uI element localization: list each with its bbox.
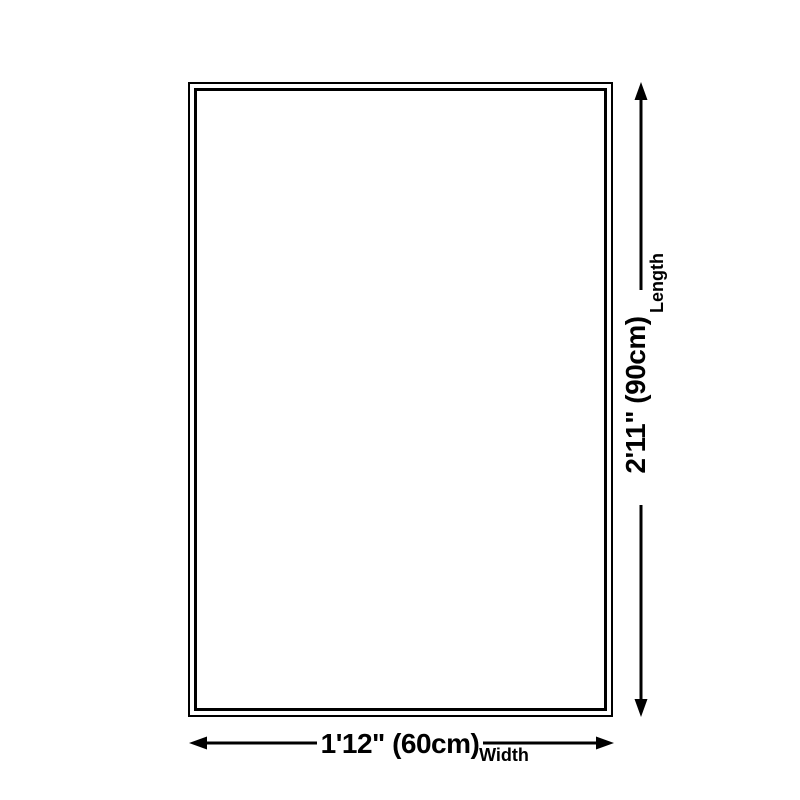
width-arrow-right-head xyxy=(596,737,614,750)
length-value: 2'11" (90cm) xyxy=(622,316,650,473)
width-arrow-left-head xyxy=(189,737,207,750)
rug-inner-outline xyxy=(194,88,607,711)
rug-outline xyxy=(188,82,613,717)
size-diagram: 2'11" (90cm) Length 1'12" (60cm) Width xyxy=(0,0,800,800)
length-arrow-down-head xyxy=(635,699,648,717)
width-label: Width xyxy=(479,746,529,764)
length-arrow-up-head xyxy=(635,82,648,100)
width-value: 1'12" (60cm) xyxy=(321,730,480,758)
length-label: Length xyxy=(648,253,666,313)
